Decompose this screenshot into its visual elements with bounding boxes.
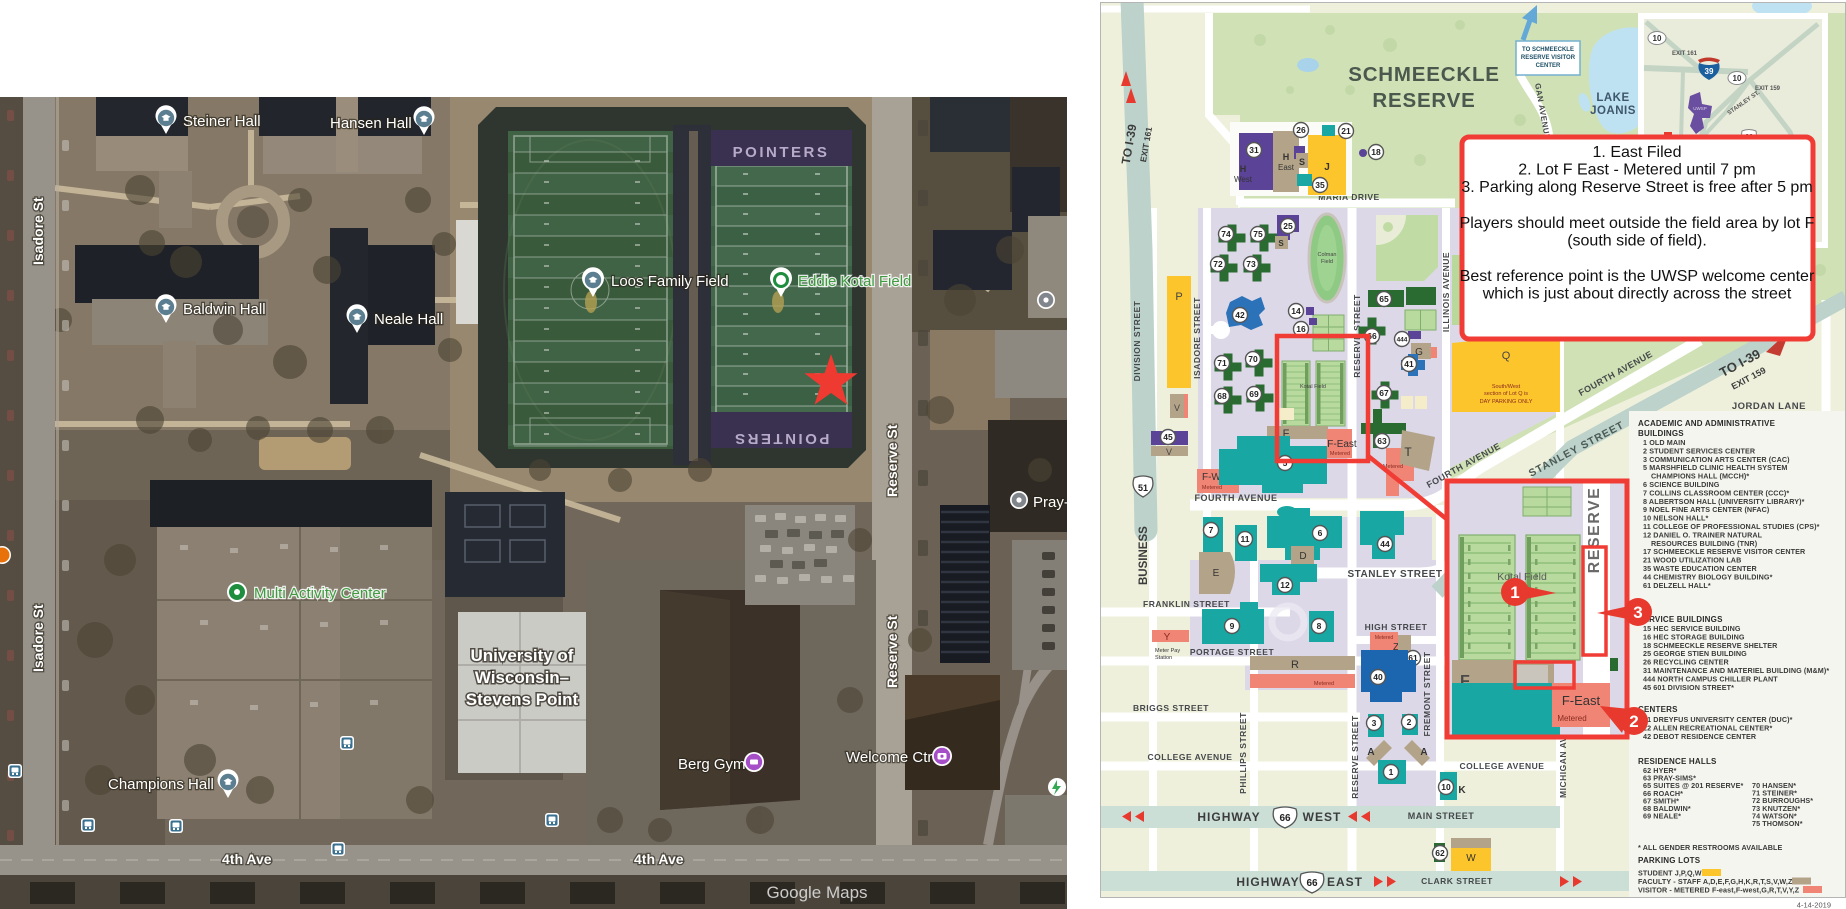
- svg-text:Pray-: Pray-: [1033, 494, 1069, 511]
- svg-text:41: 41: [1404, 359, 1414, 369]
- svg-text:Metered: Metered: [1314, 681, 1334, 687]
- svg-text:68: 68: [1217, 391, 1227, 401]
- svg-text:9: 9: [1230, 621, 1235, 631]
- svg-text:FREMONT STREET: FREMONT STREET: [1422, 651, 1432, 736]
- svg-text:69: 69: [1249, 389, 1259, 399]
- svg-text:Hansen Hall: Hansen Hall: [330, 115, 412, 132]
- svg-text:Champions Hall: Champions Hall: [108, 776, 214, 793]
- svg-text:2. Lot F East - Metered until: 2. Lot F East - Metered until 7 pm: [1518, 162, 1755, 179]
- svg-text:10: 10: [1733, 74, 1742, 83]
- svg-text:EAST: EAST: [1327, 875, 1363, 889]
- svg-text:D: D: [1299, 551, 1306, 562]
- svg-text:V: V: [1174, 403, 1180, 413]
- svg-text:Baldwin Hall: Baldwin Hall: [183, 301, 266, 318]
- svg-text:RESERVE: RESERVE: [1372, 89, 1475, 112]
- svg-text:10: 10: [1441, 782, 1451, 792]
- svg-text:72: 72: [1213, 259, 1223, 269]
- svg-text:16: 16: [1296, 324, 1306, 334]
- svg-text:61 DELZELL HALL*: 61 DELZELL HALL*: [1643, 581, 1711, 590]
- svg-text:ACADEMIC AND ADMINISTRATIVE: ACADEMIC AND ADMINISTRATIVE: [1638, 419, 1776, 428]
- svg-text:South/West: South/West: [1492, 384, 1521, 390]
- svg-text:West: West: [1234, 175, 1253, 184]
- svg-text:EXIT 159: EXIT 159: [1755, 86, 1781, 92]
- svg-text:EXIT 161: EXIT 161: [1672, 51, 1698, 57]
- svg-text:10: 10: [1653, 34, 1662, 43]
- svg-text:PHILLIPS STREET: PHILLIPS STREET: [1238, 712, 1248, 794]
- svg-text:75: 75: [1253, 229, 1263, 239]
- svg-text:3. Parking along Reserve Stree: 3. Parking along Reserve Street is free …: [1461, 179, 1812, 196]
- svg-text:Metered: Metered: [1375, 635, 1394, 641]
- svg-text:RESERVE STREET: RESERVE STREET: [1350, 715, 1360, 799]
- svg-text:BUILDINGS: BUILDINGS: [1638, 429, 1684, 438]
- svg-text:ILLINOIS AVENUE: ILLINOIS AVENUE: [1441, 252, 1451, 332]
- svg-text:STANLEY STREET: STANLEY STREET: [1348, 569, 1443, 580]
- svg-text:Reserve St: Reserve St: [884, 615, 900, 688]
- svg-text:66: 66: [1279, 813, 1291, 824]
- svg-text:18: 18: [1371, 147, 1381, 157]
- svg-text:K: K: [1458, 785, 1466, 796]
- svg-text:2: 2: [1629, 712, 1638, 731]
- svg-text:11: 11: [1241, 534, 1250, 544]
- svg-text:POINTERS: POINTERS: [733, 144, 830, 161]
- svg-text:51: 51: [1138, 483, 1148, 493]
- svg-text:COLLEGE AVENUE: COLLEGE AVENUE: [1148, 752, 1233, 762]
- svg-text:74: 74: [1221, 229, 1231, 239]
- svg-text:Metered: Metered: [1202, 485, 1222, 491]
- svg-text:Berg Gym: Berg Gym: [678, 756, 746, 773]
- svg-text:1: 1: [1510, 583, 1519, 602]
- svg-text:V: V: [1166, 447, 1172, 457]
- svg-text:CLARK STREET: CLARK STREET: [1421, 876, 1493, 886]
- svg-text:67: 67: [1379, 388, 1389, 398]
- svg-text:40: 40: [1373, 672, 1383, 682]
- svg-text:35: 35: [1315, 180, 1325, 190]
- svg-text:W: W: [1466, 853, 1476, 864]
- svg-text:MICHIGAN AVE: MICHIGAN AVE: [1558, 730, 1568, 798]
- svg-text:RESERVE: RESERVE: [1586, 487, 1603, 574]
- svg-text:R: R: [1291, 659, 1299, 671]
- svg-text:BRIGGS STREET: BRIGGS STREET: [1133, 703, 1209, 713]
- svg-text:Colman: Colman: [1318, 252, 1337, 258]
- svg-text:Kotal Field: Kotal Field: [1300, 384, 1326, 390]
- svg-text:Multi Activity Center: Multi Activity Center: [254, 585, 386, 602]
- svg-text:71: 71: [1217, 358, 1227, 368]
- svg-text:65: 65: [1379, 294, 1389, 304]
- svg-text:FOURTH AVENUE: FOURTH AVENUE: [1195, 493, 1278, 503]
- svg-text:S: S: [1278, 239, 1284, 248]
- svg-text:Welcome Ctr: Welcome Ctr: [846, 749, 932, 766]
- svg-text:DAY PARKING ONLY: DAY PARKING ONLY: [1480, 399, 1533, 405]
- svg-text:42: 42: [1235, 310, 1245, 320]
- svg-text:H: H: [1240, 164, 1247, 174]
- svg-text:42 DEBOT RESIDENCE CENTER: 42 DEBOT RESIDENCE CENTER: [1643, 732, 1757, 741]
- svg-text:14: 14: [1291, 306, 1301, 316]
- svg-text:444: 444: [1397, 336, 1408, 343]
- svg-text:69 NEALE*: 69 NEALE*: [1643, 812, 1681, 821]
- svg-text:HIGHWAY: HIGHWAY: [1236, 875, 1299, 889]
- svg-text:Q: Q: [1502, 350, 1511, 362]
- svg-text:25: 25: [1283, 221, 1293, 231]
- svg-text:Reserve St: Reserve St: [884, 424, 900, 497]
- svg-text:63: 63: [1377, 436, 1387, 446]
- svg-text:HIGHWAY: HIGHWAY: [1197, 810, 1260, 824]
- svg-text:section of Lot Q is: section of Lot Q is: [1484, 391, 1528, 397]
- svg-text:1: 1: [1389, 767, 1394, 777]
- svg-text:HIGH STREET: HIGH STREET: [1365, 622, 1428, 632]
- svg-text:Isadore St: Isadore St: [30, 197, 46, 265]
- svg-text:45: 45: [1163, 432, 1173, 442]
- svg-text:East: East: [1278, 163, 1295, 172]
- svg-text:which is just about directly a: which is just about directly across the …: [1482, 286, 1792, 303]
- svg-text:E: E: [1213, 568, 1220, 579]
- svg-text:3: 3: [1633, 603, 1642, 622]
- svg-text:21: 21: [1341, 126, 1351, 136]
- svg-text:BUSINESS: BUSINESS: [1138, 526, 1150, 585]
- svg-text:4th Ave: 4th Ave: [222, 851, 272, 867]
- svg-text:J: J: [1324, 162, 1330, 173]
- svg-text:CENTER: CENTER: [1536, 63, 1561, 69]
- svg-text:JOANIS: JOANIS: [1590, 105, 1636, 117]
- svg-text:Station: Station: [1155, 655, 1172, 661]
- svg-text:Players should meet outside th: Players should meet outside the field ar…: [1460, 215, 1815, 232]
- svg-text:DIVISION STREET: DIVISION STREET: [1132, 300, 1142, 381]
- svg-text:7: 7: [1209, 525, 1214, 535]
- svg-text:Stevens Point: Stevens Point: [466, 690, 579, 709]
- svg-text:PARKING LOTS: PARKING LOTS: [1638, 856, 1701, 865]
- svg-text:FRANKLIN STREET: FRANKLIN STREET: [1143, 599, 1230, 609]
- svg-text:H: H: [1283, 152, 1290, 162]
- svg-text:62: 62: [1435, 848, 1445, 858]
- svg-text:31: 31: [1249, 145, 1259, 155]
- svg-text:4th Ave: 4th Ave: [634, 851, 684, 867]
- svg-text:Steiner Hall: Steiner Hall: [183, 113, 261, 130]
- svg-text:VISITOR - METERED F-east,F-we: VISITOR - METERED F-east,F-west,G,R,T,V,…: [1638, 886, 1800, 895]
- svg-text:8: 8: [1317, 621, 1322, 631]
- svg-text:Isadore St: Isadore St: [30, 604, 46, 672]
- svg-text:Eddie Kotal Field: Eddie Kotal Field: [798, 273, 911, 290]
- svg-text:3: 3: [1372, 718, 1377, 728]
- svg-text:6: 6: [1318, 528, 1323, 538]
- svg-text:A: A: [1367, 747, 1374, 758]
- svg-text:LAKE: LAKE: [1596, 92, 1629, 104]
- svg-text:75 THOMSON*: 75 THOMSON*: [1752, 819, 1803, 828]
- svg-text:Metered: Metered: [1330, 451, 1350, 457]
- svg-text:Y: Y: [1164, 632, 1171, 643]
- svg-text:39: 39: [1705, 67, 1714, 76]
- svg-text:SCHMEECKLE: SCHMEECKLE: [1348, 63, 1500, 86]
- svg-text:73: 73: [1246, 259, 1256, 269]
- svg-text:P: P: [1175, 291, 1182, 303]
- svg-text:44: 44: [1380, 539, 1390, 549]
- svg-text:RESERVE VISITOR: RESERVE VISITOR: [1521, 55, 1576, 61]
- svg-text:Wisconsin–: Wisconsin–: [475, 668, 569, 687]
- svg-text:JORDAN LANE: JORDAN LANE: [1732, 401, 1806, 412]
- svg-text:WEST: WEST: [1303, 810, 1342, 824]
- svg-text:TO SCHMEECKLE: TO SCHMEECKLE: [1522, 47, 1574, 53]
- svg-text:Metered: Metered: [1557, 714, 1586, 723]
- svg-text:S: S: [1299, 157, 1305, 167]
- svg-text:2: 2: [1407, 717, 1412, 727]
- svg-text:F-East: F-East: [1327, 439, 1357, 450]
- svg-text:UWSP: UWSP: [1693, 106, 1707, 111]
- svg-text:F-East: F-East: [1562, 693, 1601, 708]
- svg-text:University of: University of: [471, 646, 574, 665]
- svg-text:COLLEGE AVENUE: COLLEGE AVENUE: [1460, 761, 1545, 771]
- svg-text:4-14-2019: 4-14-2019: [1797, 901, 1831, 909]
- svg-text:12: 12: [1280, 580, 1290, 590]
- svg-text:PORTAGE STREET: PORTAGE STREET: [1190, 647, 1275, 657]
- svg-text:1. East Filed: 1. East Filed: [1593, 144, 1682, 161]
- svg-text:ISADORE STREET: ISADORE STREET: [1192, 297, 1202, 379]
- svg-text:45 601 DIVISION STREET*: 45 601 DIVISION STREET*: [1643, 683, 1734, 692]
- svg-text:RESIDENCE HALLS: RESIDENCE HALLS: [1638, 757, 1717, 766]
- svg-text:(south side of field).: (south side of field).: [1567, 233, 1707, 250]
- svg-text:A: A: [1420, 747, 1427, 758]
- svg-text:POINTERS: POINTERS: [733, 430, 830, 447]
- svg-text:* ALL GENDER RESTROOMS AVAILAB: * ALL GENDER RESTROOMS AVAILABLE: [1638, 843, 1783, 852]
- svg-text:66: 66: [1306, 878, 1318, 889]
- svg-text:Meter Pay: Meter Pay: [1155, 648, 1180, 654]
- svg-text:26: 26: [1296, 125, 1306, 135]
- svg-text:Field: Field: [1321, 259, 1333, 265]
- svg-text:Google Maps: Google Maps: [766, 883, 867, 902]
- svg-text:Loos Family Field: Loos Family Field: [611, 273, 729, 290]
- svg-text:MAIN STREET: MAIN STREET: [1408, 811, 1475, 821]
- svg-text:70: 70: [1248, 354, 1258, 364]
- svg-text:Best reference point is the UW: Best reference point is the UWSP welcome…: [1460, 268, 1815, 285]
- svg-text:Neale Hall: Neale Hall: [374, 311, 443, 328]
- svg-text:T: T: [1404, 445, 1412, 459]
